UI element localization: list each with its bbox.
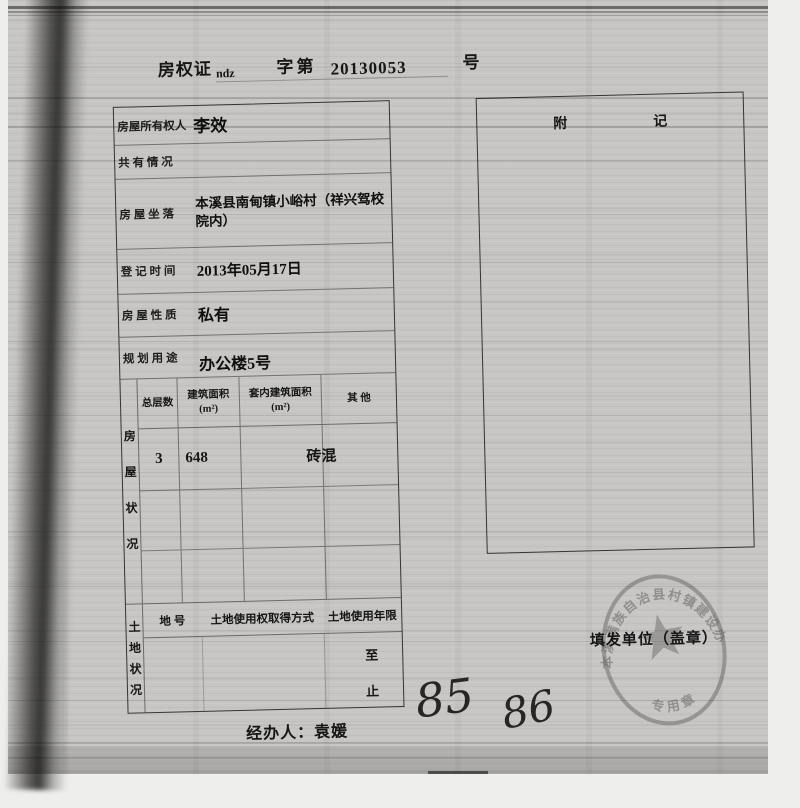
row-co-ownership-label: 共 有 情 况	[115, 144, 191, 179]
house-status-subtable: 总层数 建筑面积 (m²) 套内建筑面积 (m²) 其 他 3 648 砖	[137, 373, 400, 603]
property-form-table: 房屋所有权人 李效 共 有 情 况 房 屋 坐 落 本溪县南甸镇小峪村（祥兴驾校…	[113, 100, 405, 714]
title-code: ndz	[216, 66, 235, 81]
row-house-nature-label: 房 屋 性 质	[118, 293, 194, 337]
row-registration-date-label: 登 记 时 间	[117, 248, 193, 294]
row-planned-use-label: 规 划 用 途	[119, 336, 195, 379]
house-status-empty-row	[142, 545, 401, 603]
row-owner-value: 李效	[189, 101, 390, 143]
issuing-unit-label: 填发单位（盖章）	[590, 626, 718, 650]
header-total-floors: 总层数	[137, 378, 178, 428]
house-status-data-row: 3 648 砖混	[139, 423, 398, 491]
header-built-area-line2: (m²)	[199, 402, 218, 416]
header-built-area: 建筑面积 (m²)	[177, 377, 240, 428]
header-land-number: 地 号	[143, 603, 202, 637]
handwritten-number-86: 86	[497, 680, 559, 739]
annex-title: 附 记	[477, 93, 744, 135]
annex-title-char-right: 记	[653, 110, 667, 130]
title-suffix: 号	[462, 48, 480, 73]
certificate-document: 房权证 ndz 字第 20130053 号 房屋所有权人 李效 共 有 情 况 …	[0, 0, 800, 808]
annex-title-char-left: 附	[553, 113, 567, 133]
house-status-empty-row	[140, 485, 399, 551]
row-location: 房 屋 坐 落 本溪县南甸镇小峪村（祥兴驾校院内）	[116, 173, 393, 250]
header-land-right-method: 土地使用权取得方式	[201, 600, 324, 636]
row-location-value: 本溪县南甸镇小峪村（祥兴驾校院内）	[191, 173, 393, 247]
header-inner-area-line1: 套内建筑面积	[249, 387, 312, 402]
annex-box: 附 记	[476, 92, 755, 554]
official-round-seal: 本溪满族自治县村镇建设办 专用章	[572, 548, 759, 753]
value-inner-area: 砖混	[241, 425, 324, 488]
title-zidi: 字第	[276, 52, 317, 78]
header-inner-area-line2: (m²)	[271, 400, 290, 414]
row-co-ownership-value	[190, 139, 391, 177]
handler-name: 袁媛	[314, 723, 348, 741]
title-prefix: 房权证	[158, 55, 213, 81]
land-col-separator	[202, 637, 205, 711]
house-status-header: 总层数 建筑面积 (m²) 套内建筑面积 (m²) 其 他	[137, 373, 396, 429]
svg-text:专用章: 专用章	[648, 688, 702, 718]
row-house-nature: 房 屋 性 质 私有	[118, 288, 394, 338]
header-other: 其 他	[321, 373, 396, 424]
row-planned-use-value: 办公楼5号	[194, 331, 395, 377]
row-registration-date-value: 2013年05月17日	[192, 243, 393, 292]
land-status-block: 土地状况 地 号 土地使用权取得方式 土地使用年限 至 止	[126, 598, 404, 713]
row-location-label: 房 屋 坐 落	[116, 178, 193, 249]
handwritten-number-85: 85	[412, 667, 477, 728]
header-land-use-term: 土地使用年限	[323, 598, 402, 633]
land-term-to-marker: 止	[366, 681, 379, 700]
row-house-nature-value: 私有	[193, 288, 394, 335]
land-status-subtable: 地 号 土地使用权取得方式 土地使用年限 至 止	[143, 598, 404, 712]
header-inner-area: 套内建筑面积 (m²)	[239, 375, 322, 426]
row-owner-label: 房屋所有权人	[114, 106, 190, 145]
house-status-block: 房屋状况 总层数 建筑面积 (m²) 套内建筑面积 (m²) 其 他 3	[120, 373, 400, 605]
scan-bottom-shadow	[8, 746, 768, 774]
value-built-area: 648	[179, 427, 242, 489]
header-built-area-line1: 建筑面积	[187, 389, 229, 403]
row-planned-use: 规 划 用 途 办公楼5号	[119, 331, 395, 380]
land-term-from-marker: 至	[365, 645, 378, 664]
value-total-floors: 3	[139, 428, 180, 490]
handler-line: 经办人：袁媛	[246, 717, 349, 743]
value-other-text: 砖混	[306, 445, 337, 467]
land-col-separator	[324, 634, 327, 708]
land-status-body: 至 止	[144, 632, 404, 712]
handler-label: 经办人：	[246, 724, 314, 743]
row-registration-date: 登 记 时 间 2013年05月17日	[117, 243, 393, 295]
seal-bottom-text: 专用章	[648, 688, 702, 718]
